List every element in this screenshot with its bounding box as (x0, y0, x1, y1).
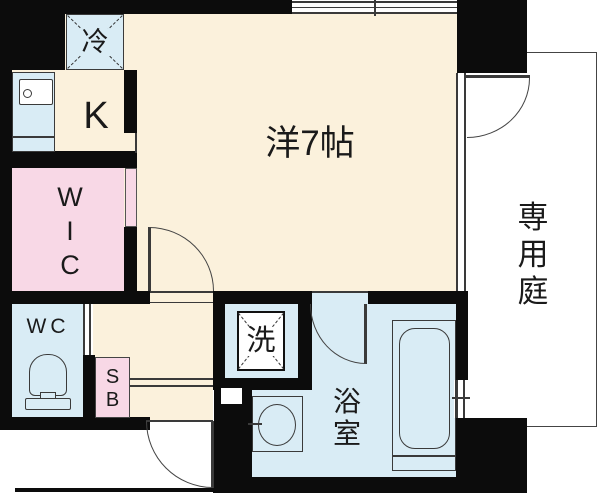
wall-kitchen-right-upper (124, 70, 137, 133)
wic-label: W I C (40, 176, 100, 286)
wall-bottom-thin (15, 488, 215, 492)
threshold-line (310, 291, 368, 293)
bath-sink-oval (258, 404, 296, 446)
wall-top (0, 0, 292, 14)
main-room-label: 洋7帖 (230, 118, 390, 168)
threshold-line (150, 291, 213, 293)
garden-label: 専 用 庭 (514, 193, 552, 315)
wall-washer-left (213, 291, 225, 390)
window-garden-line (464, 73, 466, 291)
floor-plan: 冷 K W I C WC S B 洋7帖 洗 浴 室 専 用 庭 (0, 0, 600, 493)
kitchen-opening-line (135, 133, 137, 153)
window-bath-line (463, 380, 465, 418)
toilet-base (25, 398, 71, 410)
wall-bath-right (456, 291, 468, 380)
washer-label: 洗 (237, 311, 285, 371)
wc-door-line (83, 304, 85, 355)
wall-kitchen-bottom (12, 151, 137, 168)
wall-pillar-top-right (457, 0, 527, 73)
genkan-step-line (130, 378, 213, 380)
bathtub-step (392, 456, 456, 471)
wall-wic-right (124, 227, 137, 291)
wic-door (125, 168, 137, 227)
faucet-icon (23, 89, 32, 98)
post-marker (219, 386, 244, 406)
wall-wc-bottom (0, 417, 150, 430)
genkan-step-line (130, 385, 213, 387)
bathroom-label: 浴 室 (330, 380, 364, 456)
wall-left (0, 14, 12, 430)
toilet-icon (29, 354, 67, 396)
bath-door-threshold (310, 293, 368, 304)
threshold-line (150, 302, 213, 304)
wc-label: WC (18, 313, 78, 339)
wall-mid-b (368, 291, 456, 304)
bathtub-icon (399, 328, 450, 449)
counter-divider (12, 136, 55, 138)
window-garden-line (456, 73, 458, 291)
window-bath-line (456, 380, 458, 418)
refrigerator-label: 冷 (66, 14, 124, 70)
kitchen-label: K (70, 88, 122, 144)
wall-wc-right (83, 355, 95, 418)
entrance-door-arc (146, 421, 213, 488)
shoe-box-label: S B (97, 362, 128, 414)
wall-wic-bottom (12, 291, 150, 304)
wall-bottom (213, 477, 527, 493)
window-top-tick (374, 0, 376, 16)
bath-sink-faucet (248, 423, 262, 425)
wc-door-line (89, 304, 91, 355)
